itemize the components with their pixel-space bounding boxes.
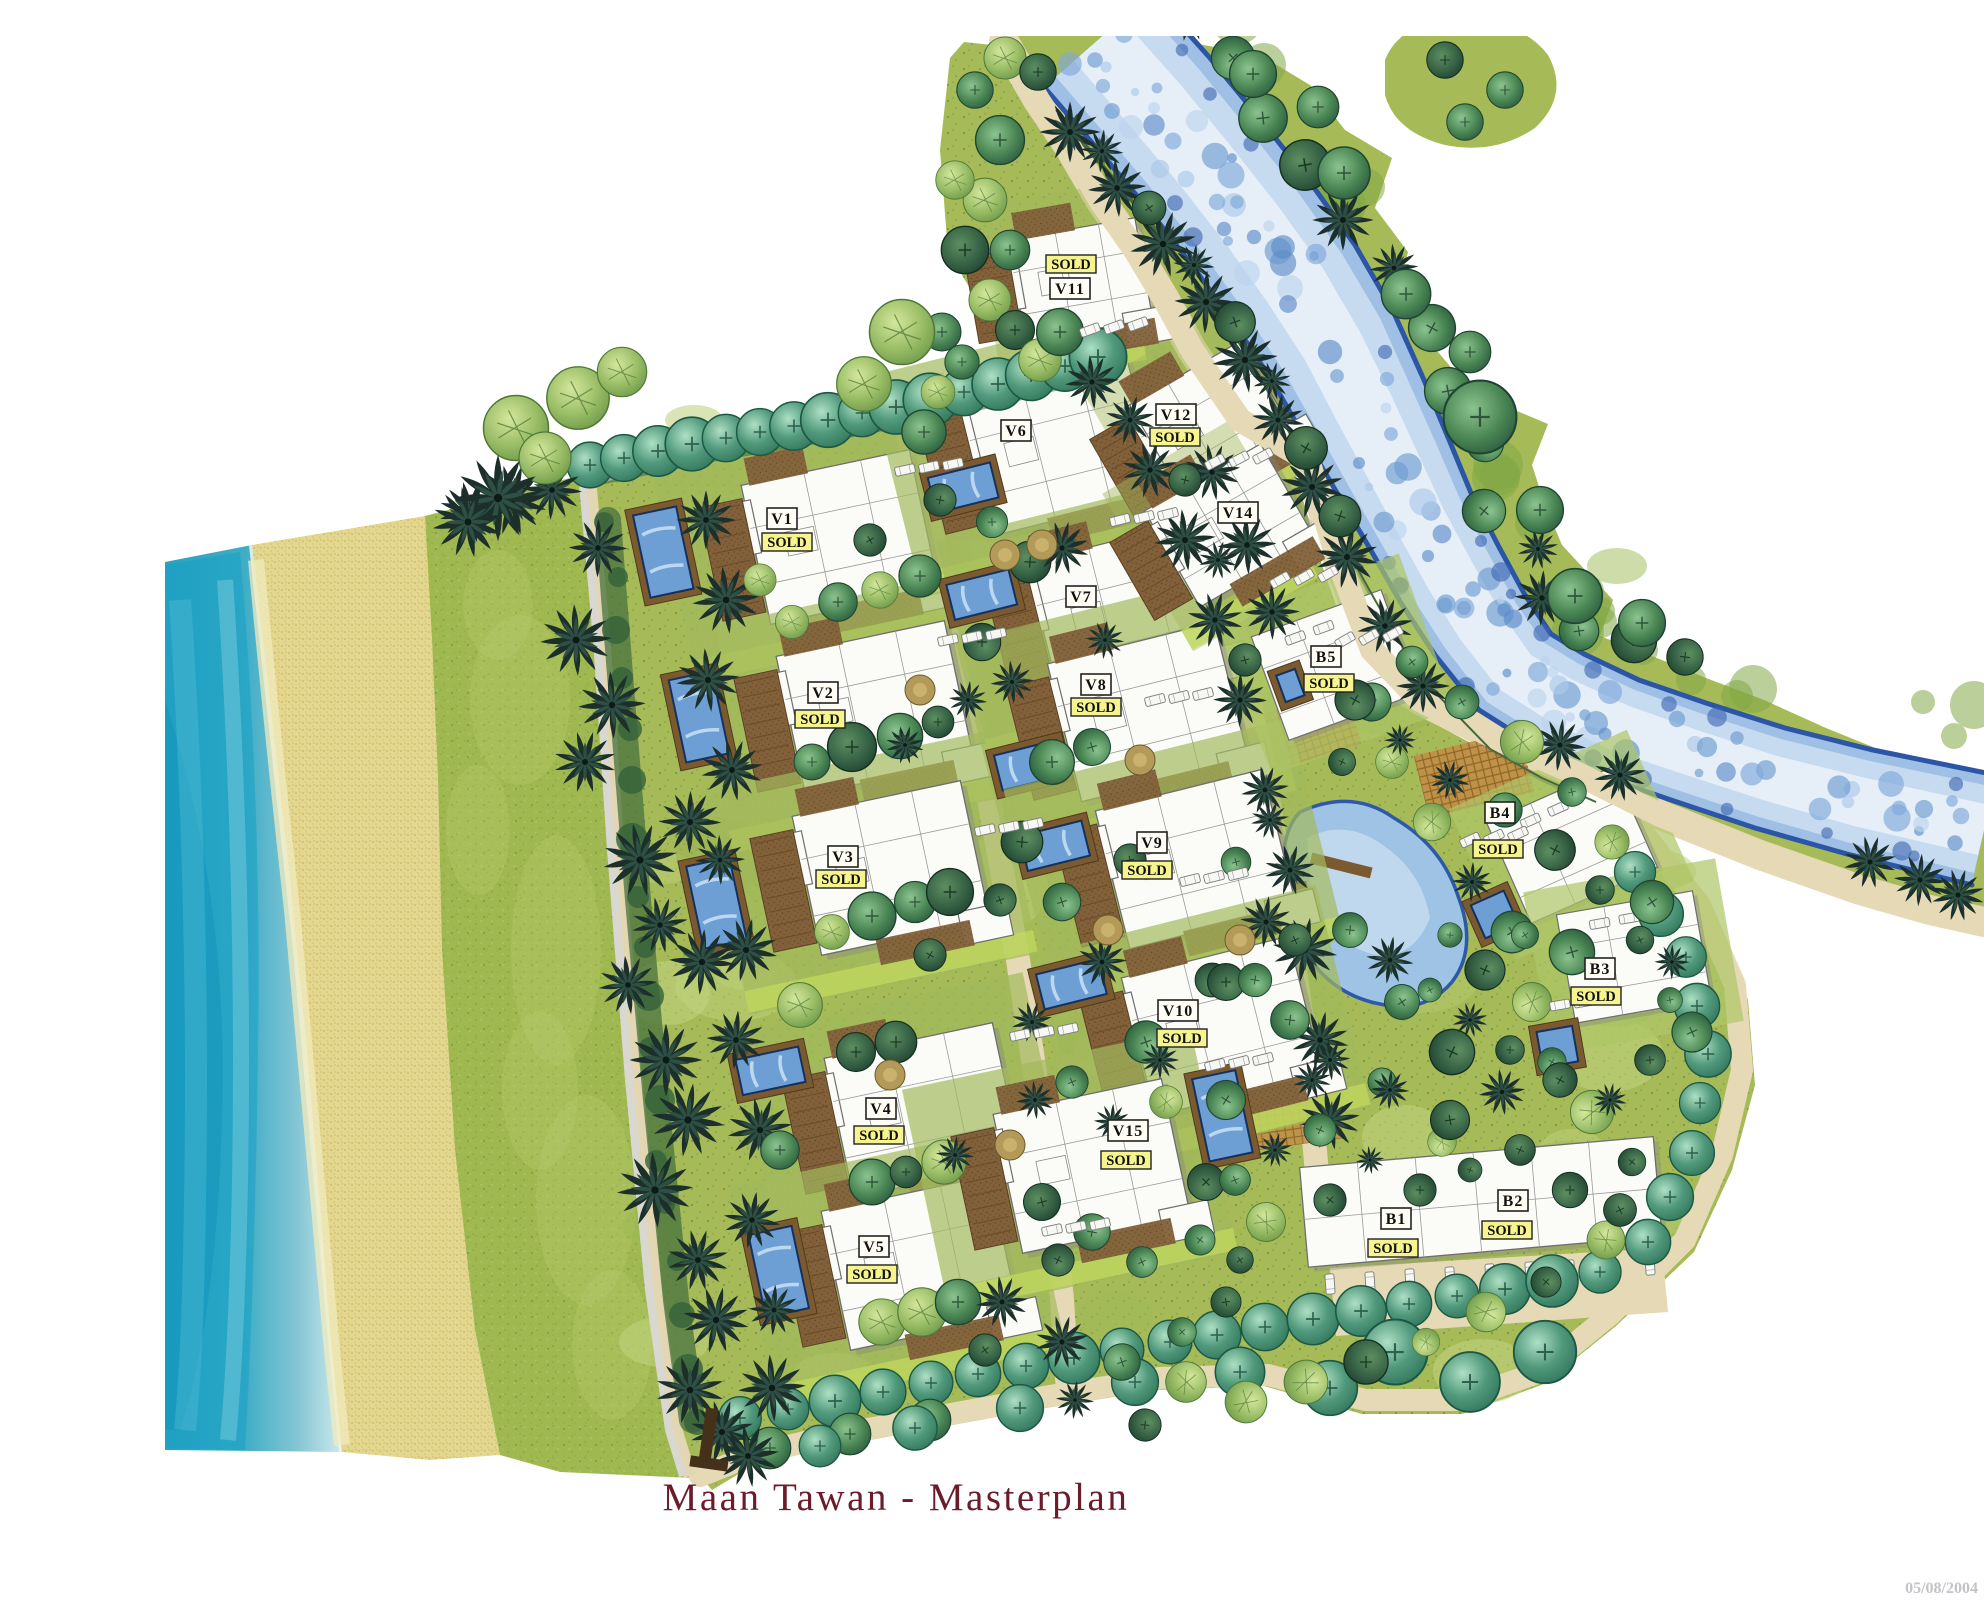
svg-text:B1: B1 bbox=[1386, 1211, 1407, 1228]
svg-text:SOLD: SOLD bbox=[1076, 700, 1116, 716]
svg-text:SOLD: SOLD bbox=[1106, 1153, 1146, 1169]
svg-text:Maan Tawan - Masterplan: Maan Tawan - Masterplan bbox=[663, 1476, 1130, 1519]
svg-text:V4: V4 bbox=[870, 1101, 892, 1118]
svg-text:B3: B3 bbox=[1590, 961, 1611, 978]
svg-text:V3: V3 bbox=[832, 849, 854, 866]
svg-text:SOLD: SOLD bbox=[1051, 257, 1091, 273]
svg-text:V14: V14 bbox=[1223, 505, 1254, 522]
svg-text:V10: V10 bbox=[1163, 1003, 1194, 1020]
svg-text:SOLD: SOLD bbox=[859, 1128, 899, 1144]
svg-text:SOLD: SOLD bbox=[1127, 863, 1167, 879]
svg-text:SOLD: SOLD bbox=[1373, 1241, 1413, 1257]
svg-text:V9: V9 bbox=[1141, 835, 1163, 852]
svg-text:V6: V6 bbox=[1005, 423, 1027, 440]
svg-text:V2: V2 bbox=[812, 685, 834, 702]
svg-text:B5: B5 bbox=[1316, 649, 1337, 666]
svg-text:V11: V11 bbox=[1055, 281, 1085, 298]
svg-text:B2: B2 bbox=[1503, 1193, 1524, 1210]
svg-text:V7: V7 bbox=[1070, 589, 1092, 606]
svg-text:05/08/2004: 05/08/2004 bbox=[1905, 1580, 1978, 1597]
svg-text:SOLD: SOLD bbox=[1155, 430, 1195, 446]
svg-text:V15: V15 bbox=[1113, 1123, 1144, 1140]
svg-text:V1: V1 bbox=[771, 511, 793, 528]
svg-text:B4: B4 bbox=[1490, 805, 1511, 822]
svg-text:SOLD: SOLD bbox=[1487, 1223, 1527, 1239]
svg-text:V5: V5 bbox=[863, 1239, 885, 1256]
svg-text:V8: V8 bbox=[1085, 677, 1107, 694]
svg-text:SOLD: SOLD bbox=[821, 872, 861, 888]
svg-text:SOLD: SOLD bbox=[800, 712, 840, 728]
svg-text:SOLD: SOLD bbox=[1309, 676, 1349, 692]
svg-text:SOLD: SOLD bbox=[1576, 989, 1616, 1005]
svg-text:SOLD: SOLD bbox=[767, 535, 807, 551]
svg-text:SOLD: SOLD bbox=[852, 1267, 892, 1283]
svg-text:SOLD: SOLD bbox=[1478, 842, 1518, 858]
svg-text:SOLD: SOLD bbox=[1162, 1031, 1202, 1047]
svg-text:V12: V12 bbox=[1161, 407, 1192, 424]
